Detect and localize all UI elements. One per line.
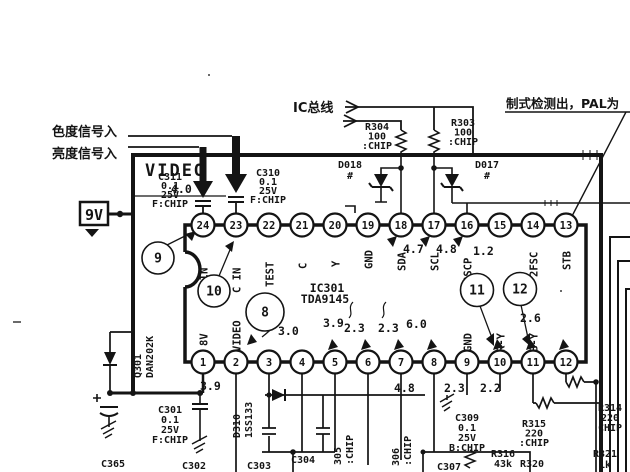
pin-label: 2FSC — [529, 252, 541, 277]
pin-number: 17 — [428, 220, 441, 232]
component-label-r305: 305 — [333, 447, 344, 465]
component-label-c365: C365 — [101, 459, 125, 470]
pin-label: 8V — [199, 333, 211, 346]
voltage-value: 6.0 — [406, 317, 427, 331]
pin-number: 13 — [560, 220, 573, 232]
pin-label: B-Y — [529, 332, 541, 352]
pin-label: TEST — [265, 262, 277, 287]
zener-d017 — [445, 174, 459, 187]
zener-d018 — [374, 174, 388, 187]
component-label-r305: :CHIP — [345, 435, 356, 465]
pin-number: 5 — [332, 357, 338, 369]
component-label-q301: Q301 — [133, 354, 144, 378]
component-label-r315: :CHIP — [519, 438, 549, 449]
component-label-r304: :CHIP — [362, 141, 392, 152]
supply-9v-label: 9V — [85, 206, 103, 224]
pin-number: 19 — [362, 220, 375, 232]
callout-number: 11 — [469, 284, 485, 299]
pin-label: C — [298, 263, 310, 269]
pin-number: 15 — [494, 220, 507, 232]
callout-number: 9 — [154, 252, 162, 267]
component-label-d017: # — [484, 171, 490, 182]
voltage-value: 2.3 — [378, 321, 399, 335]
diode-q301 — [104, 352, 116, 365]
component-label-d310: D310 — [232, 414, 243, 438]
pin-number: 16 — [461, 220, 474, 232]
pin-label: STB — [562, 251, 574, 270]
pin-number: 21 — [296, 220, 309, 232]
voltage-value: 2.6 — [520, 311, 541, 325]
pin-number: 7 — [398, 357, 404, 369]
pin-number: 3 — [266, 357, 272, 369]
callout-number: 12 — [512, 283, 528, 298]
voltage-value: 4.7 — [403, 242, 424, 256]
component-label-r321: R321 — [593, 449, 617, 460]
right-bus-wires — [610, 237, 630, 472]
pin-number: 23 — [230, 220, 243, 232]
pin-number: 12 — [560, 357, 573, 369]
resistor-r304 — [396, 130, 406, 213]
pal-detect-note: 制式检测出，PAL为 — [506, 96, 619, 111]
pin-number: 22 — [263, 220, 276, 232]
component-label-c309: B:CHIP — [449, 443, 485, 454]
pin-number: 2 — [233, 357, 239, 369]
voltage-value: 1.2 — [473, 244, 494, 258]
pin-number: 11 — [527, 357, 540, 369]
component-label-d018: # — [347, 171, 353, 182]
component-label-q301: DAN202K — [145, 336, 156, 378]
pin-number: 10 — [494, 357, 507, 369]
schematic-drawing: 色度信号入 亮度信号入 IC总线 制式检测出，PAL为 VIDEO 9V IC3… — [0, 0, 630, 472]
component-label-c304: C304 — [291, 455, 315, 466]
pin-label: GND — [364, 250, 376, 269]
luma-input-label: 亮度信号入 — [52, 146, 117, 162]
component-label-r314: CHIP — [598, 423, 622, 434]
component-label-d017: D017 — [475, 160, 499, 171]
pin-number: 1 — [200, 357, 206, 369]
voltage-value: 2.2 — [480, 381, 501, 395]
pin-label: Y — [331, 260, 343, 267]
pin-number: 8 — [431, 357, 437, 369]
pin-number: 4 — [299, 357, 305, 369]
pin-number: 24 — [197, 220, 210, 232]
cap-c365 — [93, 394, 118, 438]
component-label-d018: D018 — [338, 160, 362, 171]
ic-part-number: TDA9145 — [301, 292, 350, 306]
i2c-bus-label: IC总线 — [293, 100, 333, 116]
resistor-r314-wire — [566, 377, 596, 472]
component-label-c307: C307 — [437, 462, 461, 472]
callout-number: 8 — [261, 306, 269, 321]
cap-c302 — [192, 393, 208, 453]
voltage-value: 2.3 — [444, 381, 465, 395]
pin-label: R-Y — [496, 332, 508, 352]
pin-number: 18 — [395, 220, 408, 232]
component-label-r306: 306 — [391, 448, 402, 466]
component-label-c310: F:CHIP — [250, 195, 286, 206]
voltage-value: 4.8 — [436, 242, 457, 256]
pin-label: C IN — [232, 268, 244, 293]
component-label-c303: C303 — [247, 461, 271, 472]
voltage-value: 2.3 — [344, 321, 365, 335]
component-label-r306: :CHIP — [403, 436, 414, 466]
component-label-c301: F:CHIP — [152, 435, 188, 446]
pin-label: GND — [463, 333, 475, 352]
component-label-r321: 1k — [599, 460, 611, 471]
pin-number: 6 — [365, 357, 371, 369]
callout-number: 10 — [206, 285, 222, 300]
pin-number: 14 — [527, 220, 540, 232]
voltage-value: 4.8 — [394, 381, 415, 395]
resistor-r303 — [429, 130, 439, 213]
component-label-c302: C302 — [182, 461, 206, 472]
voltage-value: 3.0 — [278, 324, 299, 338]
component-label-d310: 1SS133 — [244, 402, 255, 438]
diode-d310 — [272, 389, 285, 401]
voltage-value: 3.9 — [200, 379, 221, 393]
pin-label: VIDEO — [232, 320, 244, 352]
component-label-c311: F:CHIP — [152, 199, 188, 210]
component-label-r320: R320 — [520, 459, 544, 470]
pin-number: 9 — [464, 357, 470, 369]
schematic-page: 色度信号入 亮度信号入 IC总线 制式检测出，PAL为 VIDEO 9V IC3… — [0, 0, 630, 472]
component-label-r316: 43k — [494, 459, 512, 470]
voltage-value: 3.9 — [323, 316, 344, 330]
chroma-input-label: 色度信号入 — [52, 124, 117, 140]
pin-number: 20 — [329, 220, 342, 232]
chroma-arrow — [232, 136, 240, 174]
component-label-r303: :CHIP — [448, 137, 478, 148]
resistor-r315-wire — [533, 398, 601, 408]
